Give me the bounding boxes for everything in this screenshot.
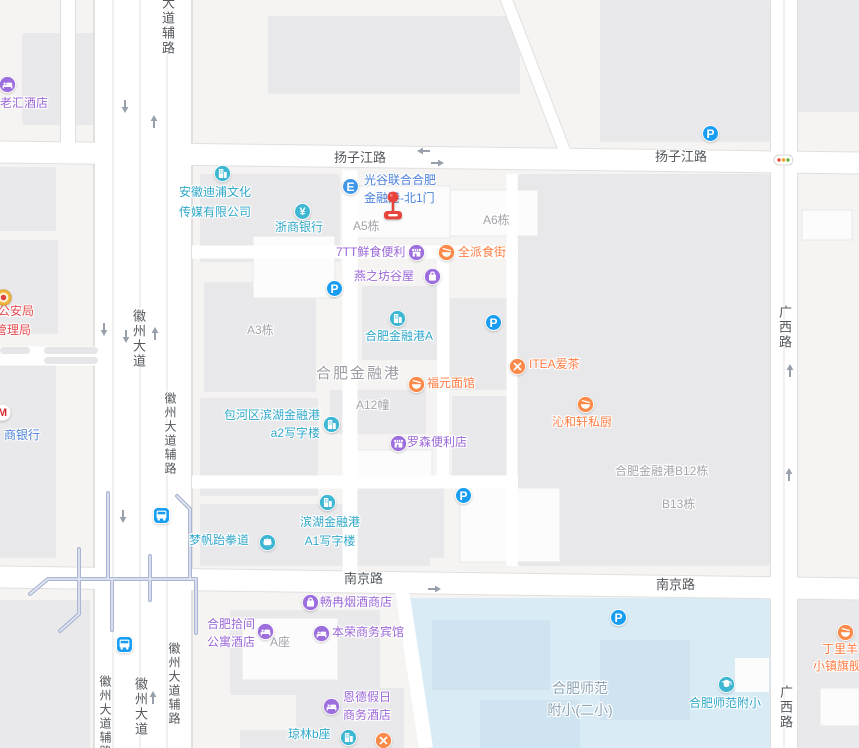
bus-stop-icon[interactable]: [116, 636, 133, 653]
poi-label-jinronggang-a[interactable]: 合肥金融港A: [365, 329, 433, 344]
poi-label-police-2[interactable]: 管理局: [0, 323, 31, 338]
bank-yen-icon[interactable]: ¥: [294, 203, 311, 220]
police-badge-icon[interactable]: [0, 289, 12, 306]
store-icon[interactable]: [390, 435, 407, 452]
poi-label-7tt[interactable]: 7TT鲜食便利: [336, 245, 405, 260]
road-label-guangxi-bottom: 广西路: [778, 685, 793, 730]
parking-icon[interactable]: P: [485, 314, 502, 331]
poi-label-qinhexuan[interactable]: 沁和轩私厨: [552, 415, 612, 430]
poi-label-yanzhifang[interactable]: 燕之坊谷屋: [354, 269, 414, 284]
poi-label-police-1[interactable]: 市公安局: [0, 304, 34, 319]
location-marker-icon[interactable]: [383, 191, 403, 221]
food-bowl-icon[interactable]: [577, 396, 594, 413]
building-label-a5: A5栋: [353, 219, 380, 234]
road-label-nanjing-right: 南京路: [656, 577, 695, 592]
building-label-b12: 合肥金融港B12栋: [615, 464, 708, 479]
poi-label-quanpai[interactable]: 全派食街: [458, 245, 506, 260]
shopping-bag-icon[interactable]: [424, 268, 441, 285]
poi-label-ende[interactable]: 恩德假日商务酒店: [343, 688, 391, 724]
poi-label-shifan-fuxiao[interactable]: 合肥师范附小: [689, 696, 761, 711]
building-label-b13: B13栋: [662, 497, 695, 512]
building-icon[interactable]: [319, 494, 336, 511]
building-icon[interactable]: [389, 310, 406, 327]
school-icon[interactable]: [718, 676, 735, 693]
food-bowl-icon[interactable]: [408, 376, 425, 393]
poi-label-mengfan[interactable]: 梦帆跆拳道: [189, 533, 249, 548]
building-label-shifan: 合肥师范附小(二小): [540, 677, 620, 721]
hotel-icon[interactable]: [0, 76, 16, 93]
building-icon[interactable]: [340, 729, 357, 746]
map-canvas[interactable]: 大道辅路 扬子江路 扬子江路 徽州大道 徽州大道辅路 南京路 南京路 广西路 广…: [0, 0, 859, 748]
parking-icon[interactable]: P: [610, 609, 627, 626]
food-bowl-icon[interactable]: [438, 244, 455, 261]
poi-label-hefei-shijian[interactable]: 合肥拾间公寓酒店: [202, 615, 255, 651]
parking-icon[interactable]: P: [326, 280, 343, 297]
road-label-guangxi-top: 广西路: [777, 305, 792, 350]
poi-label-baohe-a2[interactable]: 包河区滨湖金融港a2写字楼: [204, 406, 320, 442]
shopping-bag-icon[interactable]: [302, 594, 319, 611]
restaurant-utensils-icon[interactable]: [509, 358, 526, 375]
poi-label-benrong[interactable]: 本荣商务宾馆: [332, 625, 404, 640]
traffic-light-icon: [774, 155, 793, 165]
poi-label-cmb-bank[interactable]: 商银行: [4, 428, 40, 443]
poi-label-lawson[interactable]: 罗森便利店: [407, 435, 467, 450]
poi-label-zheshang-bank[interactable]: 浙商银行: [275, 220, 323, 235]
poi-label-fuyuan[interactable]: 福元面馆: [427, 376, 475, 391]
road-label-huizhou-fu-mid: 徽州大道辅路: [162, 392, 177, 476]
hotel-icon[interactable]: [257, 623, 274, 640]
building-label-jinronggang: 合肥金融港: [316, 366, 401, 381]
parking-icon[interactable]: P: [455, 487, 472, 504]
poi-label-laohui-hotel[interactable]: 老汇酒店: [0, 96, 48, 111]
bus-stop-icon[interactable]: [153, 507, 170, 524]
road-label-huizhou-bottom: 徽州大道: [133, 677, 148, 737]
restaurant-utensils-icon[interactable]: [375, 732, 392, 748]
road-label-huizhou-fu-br: 徽州大道辅路: [166, 642, 181, 726]
road-label-yangzijiang-right: 扬子江路: [655, 149, 707, 164]
hotel-icon[interactable]: [313, 625, 330, 642]
building-label-a3: A3栋: [247, 323, 274, 338]
hotel-icon[interactable]: [323, 698, 340, 715]
road-label-dadao-fu-top: 大道辅路: [160, 0, 175, 56]
entrance-icon[interactable]: E: [342, 178, 359, 195]
parking-icon[interactable]: P: [702, 125, 719, 142]
building-icon[interactable]: [214, 165, 231, 182]
building-label-a12: A12幢: [356, 398, 389, 413]
poi-label-itea[interactable]: ITEA爱茶: [529, 357, 580, 372]
poi-label-anhui-dipu[interactable]: 安徽迪浦文化传媒有限公司: [179, 182, 251, 222]
road-label-huizhou-fu-bl: 徽州大道辅路: [97, 675, 112, 748]
road-label-yangzijiang-left: 扬子江路: [334, 150, 386, 165]
taekwondo-fist-icon[interactable]: [259, 534, 276, 551]
poi-label-binhu-a1[interactable]: 滨湖金融港A1写字楼: [294, 513, 366, 551]
building-icon[interactable]: [323, 416, 340, 433]
poi-label-qionglin[interactable]: 琼林b座: [288, 727, 331, 742]
poi-label-dingliyang-2[interactable]: 小镇旗舰店: [813, 659, 859, 674]
food-bowl-icon[interactable]: [837, 624, 854, 641]
poi-label-changran[interactable]: 畅冉烟酒商店: [320, 595, 392, 610]
store-icon[interactable]: [408, 244, 425, 261]
building-label-a6: A6栋: [483, 213, 510, 228]
road-label-nanjing-left: 南京路: [344, 571, 383, 586]
road-label-huizhou-mid: 徽州大道: [131, 309, 146, 369]
poi-label-dingliyang-1[interactable]: 丁里羊: [822, 642, 858, 657]
